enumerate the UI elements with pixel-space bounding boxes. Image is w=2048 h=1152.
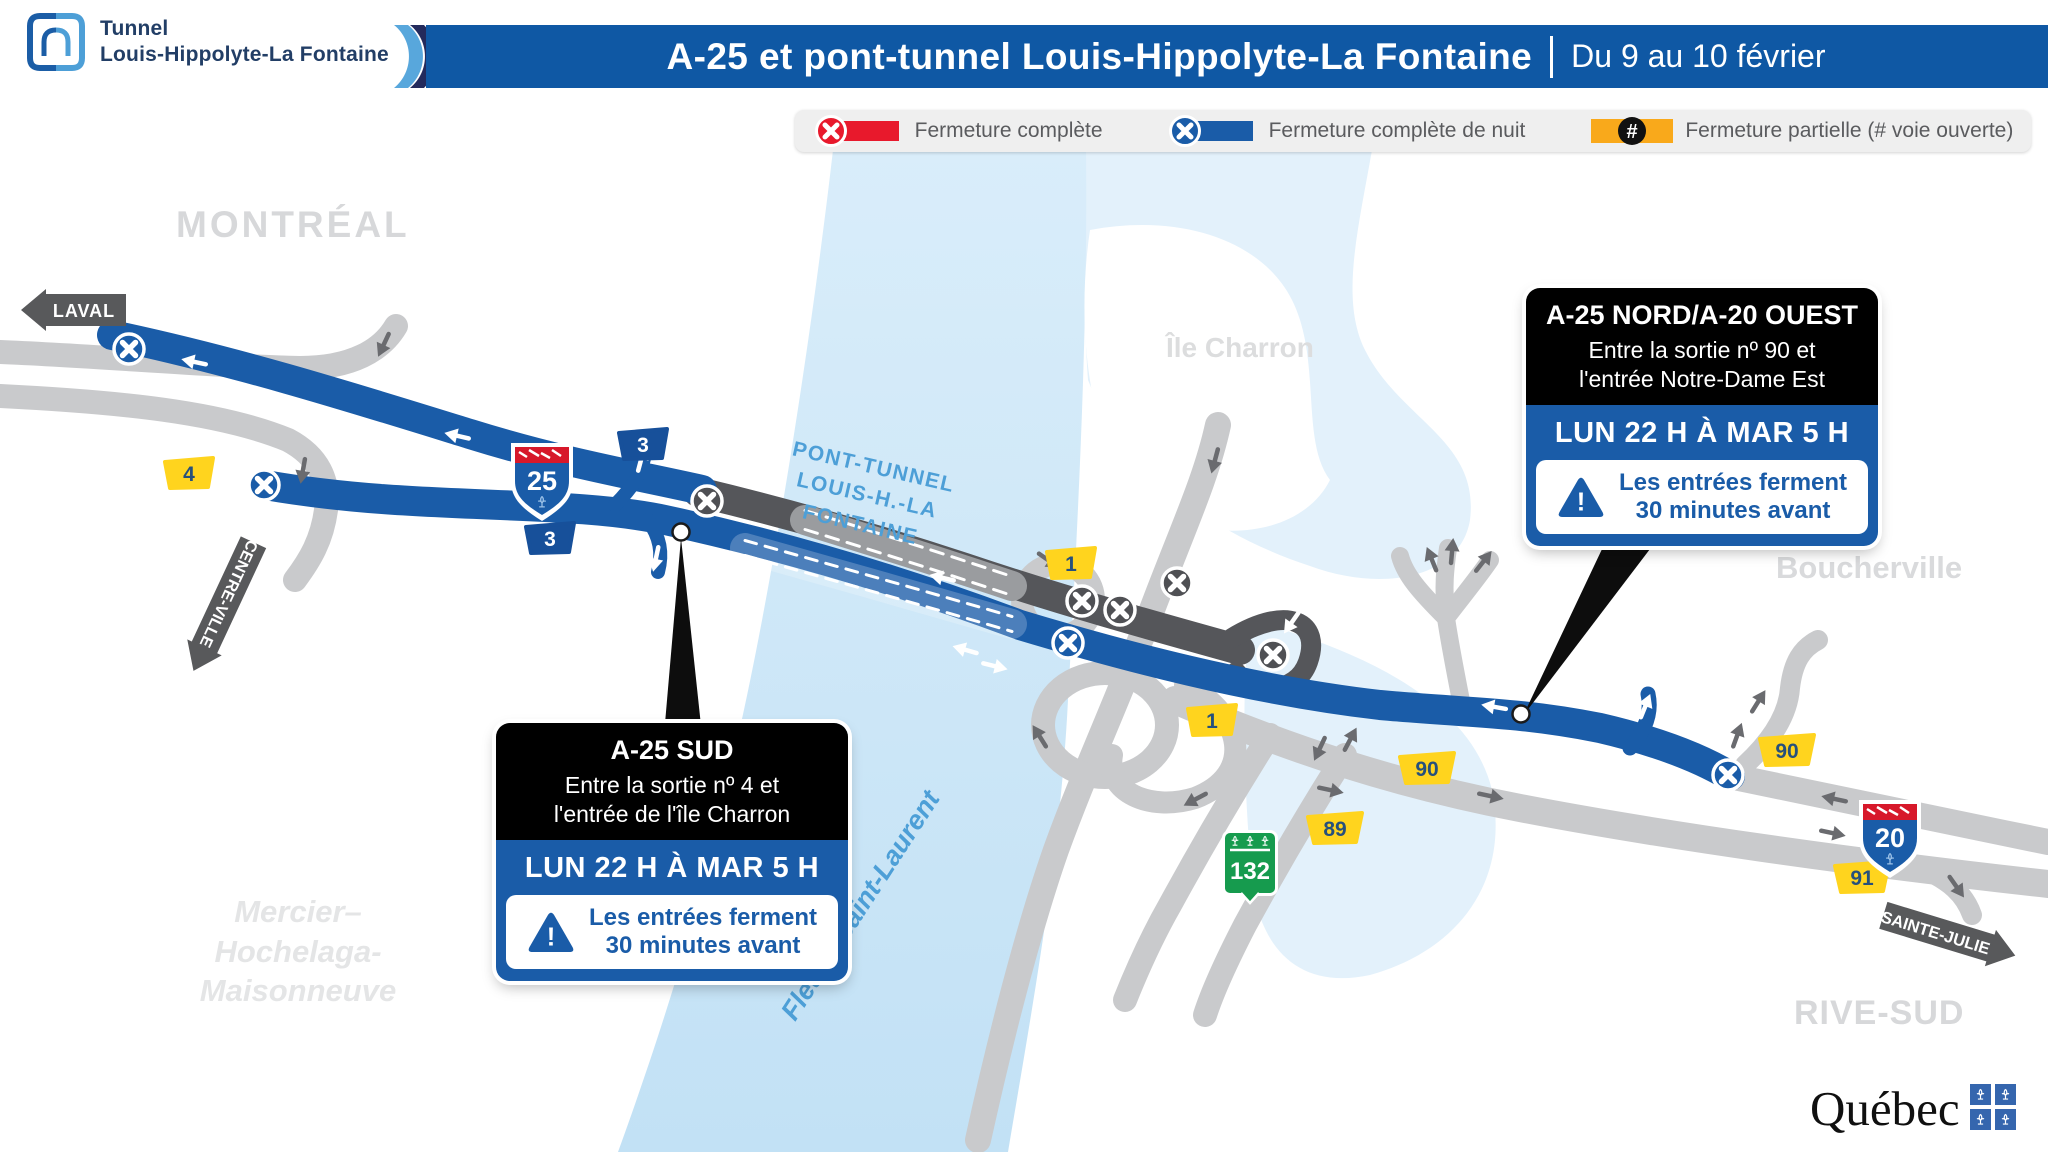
exit-marker-3: 3	[619, 429, 667, 459]
callout-line2: l'entrée de l'île Charron	[504, 800, 840, 829]
svg-text:25: 25	[527, 466, 557, 496]
callout-warning: ! Les entrées ferment 30 minutes avant	[1536, 460, 1868, 535]
svg-text:LAVAL: LAVAL	[53, 301, 115, 321]
sainte-julie-sign: SAINTE-JULIE	[1876, 897, 2020, 974]
full-closure-symbol	[813, 113, 905, 149]
night-closure-badge	[114, 334, 144, 364]
pointer-dot	[1513, 706, 1530, 723]
tunnel-logo-icon	[26, 12, 86, 72]
callout-body: LUN 22 H À MAR 5 H ! Les entrées ferment…	[1526, 405, 1878, 547]
mercier-line3: Maisonneuve	[158, 971, 438, 1011]
mercier-line2: Hochelaga-	[158, 932, 438, 972]
date-range: Du 9 au 10 février	[1571, 38, 1825, 75]
page-title: A-25 et pont-tunnel Louis-Hippolyte-La F…	[666, 36, 1532, 78]
exit-marker-1: 1	[1188, 705, 1236, 735]
callout-warning-text: Les entrées ferment 30 minutes avant	[589, 904, 817, 961]
night-closure-badge	[249, 470, 279, 500]
closure-badge	[1258, 640, 1288, 670]
area-label-boucherville: Boucherville	[1776, 550, 1962, 586]
tunnel-logo: Tunnel Louis-Hippolyte-La Fontaine	[26, 12, 389, 72]
logo-line2: Louis-Hippolyte-La Fontaine	[100, 42, 389, 68]
legend-label-night-closure: Fermeture complète de nuit	[1269, 119, 1526, 143]
svg-text:1: 1	[1065, 553, 1077, 576]
warning-triangle-icon: !	[1557, 475, 1605, 519]
exit-marker-90: 90	[1400, 753, 1454, 783]
area-label-montreal: MONTRÉAL	[176, 204, 410, 246]
area-label-mercier: Mercier– Hochelaga- Maisonneuve	[158, 892, 438, 1011]
svg-text:90: 90	[1415, 758, 1438, 781]
svg-text:91: 91	[1850, 867, 1874, 890]
title-divider	[1550, 36, 1553, 78]
page-header: Tunnel Louis-Hippolyte-La Fontaine A-25 …	[0, 0, 2048, 92]
logo-line1: Tunnel	[100, 16, 389, 42]
exit-marker-1: 1	[1047, 548, 1095, 578]
svg-text:!: !	[547, 923, 556, 951]
legend-label-partial-closure: Fermeture partielle (# voie ouverte)	[1685, 119, 2013, 143]
svg-text:CENTRE-VILLE: CENTRE-VILLE	[196, 537, 261, 650]
banner-crescent-decoration	[388, 25, 448, 88]
title-banner: A-25 et pont-tunnel Louis-Hippolyte-La F…	[444, 25, 2048, 88]
centre-ville-sign: CENTRE-VILLE	[176, 533, 271, 679]
warning-triangle-icon: !	[527, 910, 575, 954]
svg-text:89: 89	[1323, 818, 1346, 841]
closure-badge	[1162, 568, 1192, 598]
exit-marker-90: 90	[1760, 735, 1814, 765]
callout-warning-text: Les entrées ferment 30 minutes avant	[1619, 469, 1847, 526]
pointer-dot	[673, 524, 690, 541]
callout-line2: l'entrée Notre-Dame Est	[1534, 365, 1870, 394]
area-label-rive-sud: RIVE-SUD	[1794, 994, 1964, 1033]
callout-title: A-25 SUD	[504, 735, 840, 766]
svg-text:1: 1	[1206, 710, 1218, 733]
svg-text:3: 3	[544, 528, 556, 551]
svg-text:132: 132	[1230, 858, 1270, 885]
svg-text:20: 20	[1875, 823, 1905, 853]
callout-header: A-25 SUD Entre la sortie nº 4 et l'entré…	[496, 723, 848, 840]
hash-symbol: #	[1627, 121, 1638, 143]
exit-marker-89: 89	[1308, 813, 1362, 843]
partial-closure-symbol: #	[1589, 113, 1675, 149]
quebec-flag-icon	[1970, 1084, 2016, 1130]
night-closure-badge	[1713, 760, 1743, 790]
callout-schedule: LUN 22 H À MAR 5 H	[1536, 417, 1868, 450]
legend-item-partial-closure: # Fermeture partielle (# voie ouverte)	[1589, 113, 2013, 149]
callout-a25-nord-a20-ouest: A-25 NORD/A-20 OUEST Entre la sortie nº …	[1526, 288, 1878, 546]
quebec-wordmark: Québec	[1810, 1084, 2016, 1133]
warning-line1: Les entrées ferment	[1619, 469, 1847, 497]
svg-text:4: 4	[183, 463, 195, 486]
night-closure-symbol	[1167, 113, 1259, 149]
svg-text:3: 3	[637, 434, 649, 457]
night-closure-badge	[1053, 628, 1083, 658]
svg-text:90: 90	[1775, 740, 1798, 763]
callout-header: A-25 NORD/A-20 OUEST Entre la sortie nº …	[1526, 288, 1878, 405]
legend-label-full-closure: Fermeture complète	[915, 119, 1103, 143]
closure-badge	[1067, 586, 1097, 616]
quebec-wordmark-text: Québec	[1810, 1084, 1960, 1133]
infographic-page: 4 3 3 1 1 90 90 89	[0, 0, 2048, 1152]
warning-line2: 30 minutes avant	[589, 932, 817, 960]
exit-marker-4: 4	[165, 458, 213, 488]
callout-line1: Entre la sortie nº 4 et	[504, 771, 840, 800]
callout-a25-sud: A-25 SUD Entre la sortie nº 4 et l'entré…	[496, 723, 848, 981]
legend-item-night-closure: Fermeture complète de nuit	[1167, 113, 1526, 149]
callout-body: LUN 22 H À MAR 5 H ! Les entrées ferment…	[496, 840, 848, 982]
laval-sign: LAVAL	[21, 289, 126, 331]
area-label-ile-charron: Île Charron	[1166, 332, 1314, 364]
warning-line2: 30 minutes avant	[1619, 497, 1847, 525]
closure-badge	[692, 486, 722, 516]
legend-item-full-closure: Fermeture complète	[813, 113, 1103, 149]
callout-line1: Entre la sortie nº 90 et	[1534, 336, 1870, 365]
mercier-line1: Mercier–	[158, 892, 438, 932]
shield-route-132: 132	[1222, 830, 1278, 903]
exit-marker-3: 3	[526, 523, 574, 553]
warning-line1: Les entrées ferment	[589, 904, 817, 932]
logo-text: Tunnel Louis-Hippolyte-La Fontaine	[100, 16, 389, 69]
callout-warning: ! Les entrées ferment 30 minutes avant	[506, 895, 838, 970]
closure-badge	[1105, 595, 1135, 625]
map-legend: Fermeture complète Fermeture complète de…	[795, 110, 2031, 152]
svg-text:!: !	[1577, 488, 1586, 516]
callout-schedule: LUN 22 H À MAR 5 H	[506, 852, 838, 885]
callout-title: A-25 NORD/A-20 OUEST	[1534, 300, 1870, 331]
